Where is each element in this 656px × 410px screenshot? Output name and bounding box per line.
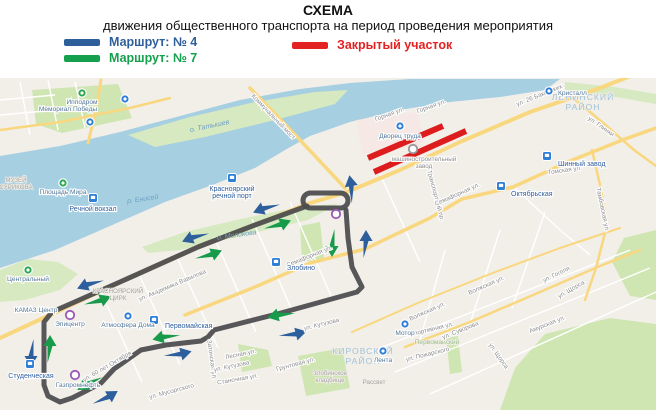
bus-glyph [274,260,278,263]
bus-glyph [545,154,549,157]
area-label: кладбище [316,377,345,384]
poi-glyph [398,124,401,127]
map-canvas[interactable]: ЛЕНИНСКИЙРАЙОНКИРОВСКИЙРАЙОНр. Енисейо. … [0,78,656,410]
station-label: речной порт [212,192,252,200]
poi-label: Кристалл [558,90,587,97]
poi-label: Лента [374,357,393,364]
station-label: Шинный завод [558,160,606,168]
bus-glyph [230,176,234,179]
area-label: Злобинское [313,370,348,377]
legend-closed-section: Закрытый участок [292,39,452,51]
station-label: Красноярский [209,185,254,193]
poi-label: Ипподром [66,99,98,106]
bus-glyph [28,362,32,365]
poi-label: Дворец труда [379,133,421,140]
poi-label: КАМАЗ Центр [15,307,58,314]
station-label: Злобино [287,264,315,272]
purple-poi-icon[interactable] [71,371,79,379]
legend-route-7-label: Маршрут: № 7 [109,51,197,65]
legend-closed-section-label: Закрытый участок [337,38,452,52]
station-label: Студенческая [8,373,54,380]
area-label: Первомайский [415,338,460,346]
station-label: Речной вокзал [69,205,116,213]
area-label: СУРИКОВА [0,184,33,191]
district-label: РАЙОН [566,101,601,112]
area-label: МУЗЕЙ [5,176,26,184]
gray-poi-icon[interactable] [409,145,417,153]
bus-glyph [499,184,503,187]
area-label: Рассвет [363,379,386,386]
poi-glyph [88,120,91,123]
poi-label: Площадь Мира [39,189,86,196]
poi-glyph [403,322,406,325]
scheme-page: СХЕМА движения общественного транспорта … [0,0,656,410]
poi-label: Газпромнефть [56,382,101,389]
bus-glyph [91,196,95,199]
purple-poi-icon[interactable] [332,210,340,218]
legend-route-7: Маршрут: № 7 [64,52,197,64]
purple-poi-icon[interactable] [66,311,74,319]
poi-label: Мотор [395,330,415,337]
poi-label: Мемориал Победы [39,105,98,113]
legend-route-4-label: Маршрут: № 4 [109,35,197,49]
poi-glyph [61,181,64,184]
area-label: КРАСНОЯРСКИЙ [93,287,143,295]
poi-glyph [547,89,550,92]
poi-label: завод [416,163,433,170]
poi-glyph [381,349,384,352]
bus-glyph [152,318,156,321]
area-label: ЦИРК [110,295,127,302]
poi-label: Центральный [7,275,49,283]
closed-section-swatch [292,42,328,49]
route-7-line-swatch [64,55,100,62]
poi-label: Эпицентр [55,321,85,328]
station-label: Первомайская [165,322,213,330]
legend-route-4: Маршрут: № 4 [64,36,197,48]
station-label: Октябрьская [511,190,553,198]
page-subtitle: движения общественного транспорта на пер… [0,18,656,33]
poi-glyph [126,314,129,317]
page-title: СХЕМА [0,2,656,18]
poi-label: Атмосфера Дома [101,322,155,329]
poi-label: машиностроительный [392,155,457,163]
route-4-line-swatch [64,39,100,46]
header: СХЕМА движения общественного транспорта … [0,0,656,78]
poi-glyph [80,91,83,94]
poi-glyph [123,97,126,100]
poi-glyph [26,268,29,271]
